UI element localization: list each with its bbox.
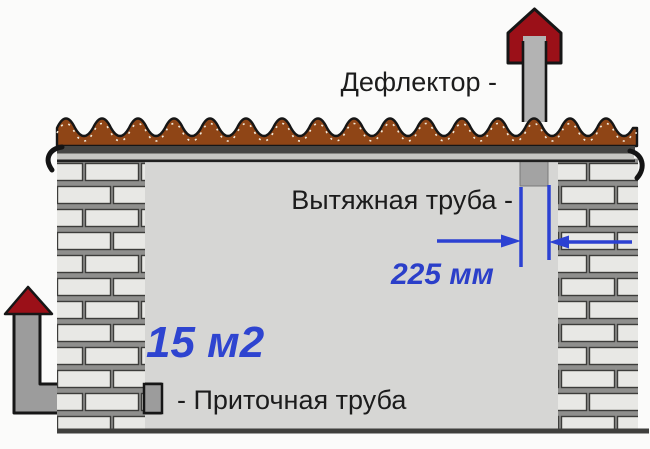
- roof-fascia-light: [57, 154, 634, 161]
- exhaust-pipe-interior: [520, 159, 548, 186]
- diagram-canvas: Дефлектор - Вытяжная труба - 225 мм 15 м…: [0, 0, 650, 449]
- deflector-label: Дефлектор -: [341, 67, 497, 97]
- brick-wall-left: [57, 159, 145, 432]
- ventilation-scheme-diagram: Дефлектор - Вытяжная труба - 225 мм 15 м…: [0, 0, 650, 449]
- supply-pipe-label: - Приточная труба: [177, 385, 407, 415]
- exhaust-pipe-label: Вытяжная труба -: [291, 185, 513, 215]
- roof-fascia-dark: [57, 146, 635, 154]
- supply-pipe-stub: [144, 384, 162, 413]
- pipe-diameter-label: 225 мм: [390, 258, 494, 291]
- exhaust-pipe-exterior: [523, 36, 546, 122]
- room-area-label: 15 м2: [146, 318, 265, 367]
- brick-wall-right: [558, 159, 638, 430]
